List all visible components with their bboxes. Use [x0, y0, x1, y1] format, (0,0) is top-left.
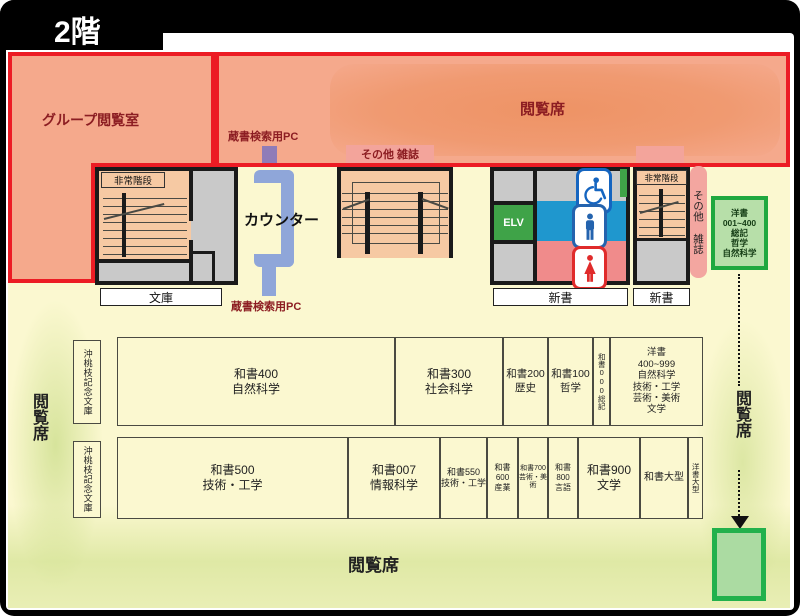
opac-pc-bottom-marker — [262, 267, 276, 296]
memorial-bunko-box-2: 沖桃枝記念文庫 — [73, 441, 101, 518]
floor-map-frame: 2階 沖桃枝記念文庫 和書400 自然科学 和書300 社会科学 和書200 歴… — [0, 0, 800, 616]
shinsho-center-label: 新書 — [493, 288, 628, 306]
elv-wall-bottom — [494, 240, 533, 244]
mens-room-icon — [572, 204, 607, 249]
shelf-washo-550: 和書550 技術・工学 — [440, 437, 487, 519]
group-reading-room-extension — [8, 163, 95, 283]
stairs-left-rail — [122, 193, 126, 257]
womens-room-icon — [572, 246, 607, 290]
shelf-washo-800: 和書800 言語 — [548, 437, 578, 519]
route-dotted-line-upper — [738, 274, 740, 386]
yosho-guide-box: 洋書 001~400 総記 哲学 自然科学 — [711, 196, 768, 270]
other-magazines-top-patch — [636, 146, 684, 163]
emergency-stairs-right-label: 非常階段 — [636, 170, 687, 185]
route-dotted-line-lower — [738, 470, 740, 516]
left-block-inner-wall-v2 — [189, 240, 193, 285]
elevator-cell: ELV — [494, 205, 533, 240]
left-block-inner-stub-h — [193, 251, 213, 254]
shelf-washo-200: 和書200 歴史 — [503, 337, 548, 426]
counter-desk-bottom-arm — [254, 254, 294, 267]
group-room-junction-patch — [13, 159, 89, 171]
opac-pc-bottom-label: 蔵書検索用PC — [231, 298, 301, 314]
reading-seats-bottom-label: 閲覧席 — [348, 551, 399, 576]
shelf-washo-007: 和書007 情報科学 — [348, 437, 440, 519]
shelf-washo-400: 和書400 自然科学 — [117, 337, 395, 426]
shelf-washo-500: 和書500 技術・工学 — [117, 437, 348, 519]
left-block-inner-wall-v1 — [189, 171, 193, 221]
reading-seats-left-label: 閲覧席 — [26, 393, 50, 441]
shelf-washo-large: 和書大型 — [640, 437, 688, 519]
shelf-washo-600: 和書600 産業 — [487, 437, 518, 519]
left-block-inner-stub-v — [212, 251, 215, 283]
group-reading-room-label: グループ閲覧室 — [42, 110, 139, 130]
shelf-washo-700: 和書700 芸術・美術 — [518, 437, 548, 519]
shelf-washo-100: 和書100 哲学 — [548, 337, 593, 426]
opac-pc-top-marker — [262, 146, 277, 163]
green-sliver — [620, 169, 627, 197]
emergency-stairs-left-label: 非常階段 — [101, 172, 165, 188]
stairs-left-icon — [103, 191, 187, 257]
shelf-washo-300: 和書300 社会科学 — [395, 337, 503, 426]
shelf-washo-900: 和書900 文学 — [578, 437, 640, 519]
shelf-washo-000: 和書000総記 — [593, 337, 610, 426]
destination-green-box — [712, 528, 766, 601]
bunko-label: 文庫 — [100, 288, 222, 306]
opac-pc-top-label: 蔵書検索用PC — [228, 128, 298, 144]
stairs-right-rail — [659, 189, 663, 237]
right-stairwell-gray-room — [637, 241, 686, 281]
page-title: 2階 — [54, 7, 101, 51]
shinsho-right-label: 新書 — [633, 288, 690, 306]
counter-label: カウンター — [244, 209, 319, 230]
reading-seats-right-label: 閲覧席 — [729, 390, 753, 438]
central-staircase-rail-right — [418, 192, 423, 254]
left-block-inner-wall-h — [99, 259, 191, 263]
shelf-yosho-400-999: 洋書 400~999 自然科学 技術・工学 芸術・美術 文学 — [610, 337, 703, 426]
shelf-yosho-large: 洋書大型 — [688, 437, 703, 519]
central-staircase-treads — [342, 186, 448, 240]
reading-seats-room-label: 閲覧席 — [520, 98, 565, 119]
other-magazines-top-label: その他 雑誌 — [346, 145, 434, 163]
reading-glow-bottom — [8, 505, 790, 608]
memorial-bunko-box-1: 沖桃枝記念文庫 — [73, 340, 101, 424]
other-magazines-side-label: その他 雑誌 — [690, 166, 707, 278]
